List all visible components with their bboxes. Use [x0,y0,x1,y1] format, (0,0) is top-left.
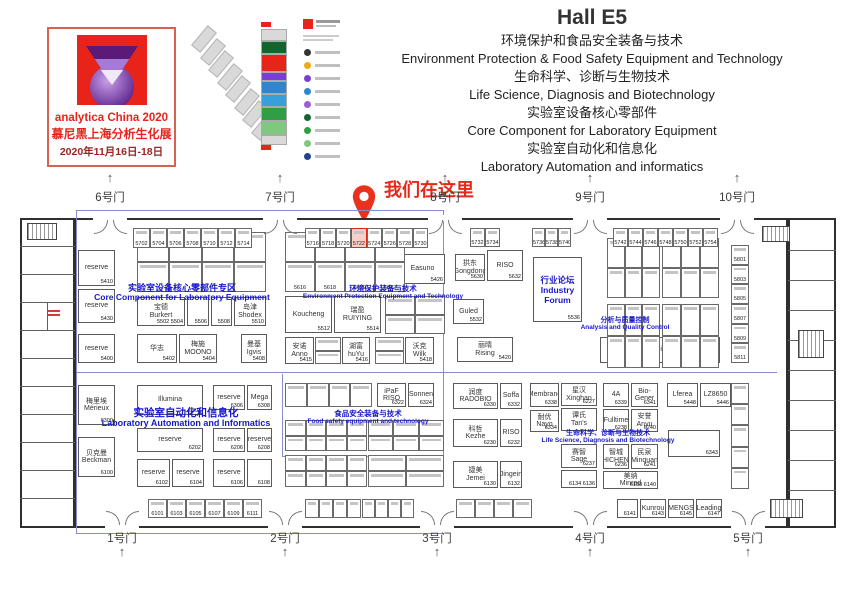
booth: Mega6308 [247,385,272,410]
hall-wall [20,218,75,528]
booth-cell [315,337,341,351]
booth-cell [368,455,406,471]
booth: 耐优 Nayo6334 [530,410,559,432]
booth-cell: 5744 [628,228,643,247]
wall-divider [20,246,75,247]
booth-cell [347,436,368,452]
booth-cell [368,471,406,487]
booth-cell [700,304,719,336]
booth-cell: 5720 [336,228,351,248]
booth: Kunrou6143 [640,499,666,518]
booth-cell: 5724 [367,228,382,248]
booth: 贝克曼 Beckman6100 [78,437,115,477]
wall-divider [20,498,75,499]
booth-cell: 5706 [167,228,184,248]
booth-cell [285,383,307,407]
booth-cell [285,471,306,487]
booth-cell: 5752 [688,228,703,247]
booth: 6141 [617,499,638,518]
booth-cell: 5708 [184,228,201,248]
booth-cell [662,268,681,298]
booth-cell: 6109 [224,499,243,518]
booth-cell [700,336,719,368]
booth-cell [731,404,749,425]
booth: 润度 RADOBIO6330 [453,383,498,409]
booth: Koucheng5512 [285,296,332,333]
wall-divider [788,400,836,401]
booth: 拱东 Gongdong5630 [455,254,485,281]
gate-arrow-icon: ↑ [119,545,126,558]
wall-divider [20,330,75,331]
booth-cell: 5726 [382,228,397,248]
booth-cell: 5736 [532,228,545,247]
booth: 行业论坛 Industry Forum5536 [533,257,582,322]
booth-cell [662,304,681,336]
gate-arrow-icon: ↑ [277,171,284,184]
booth: 捷美 Jemei6130 [453,461,498,488]
booth-cell: 5716 [305,228,320,248]
annex-red-note [48,314,60,316]
booth: iPaF RISO6322 [377,383,406,407]
booth-cell [285,455,306,471]
booth-cell [731,425,749,446]
booth: reserve6206 [213,428,245,452]
booth-cell [350,383,372,407]
booth: 4A6339 [603,383,629,407]
gate-label: 6号门 [95,189,124,205]
booth-cell [285,436,306,452]
booth: Membrane6338 [530,383,559,407]
booth-cell: 5748 [658,228,673,247]
booth-cell [607,336,625,368]
booth-cell: 5734 [485,228,500,247]
booth: 沃克 Wilk5418 [405,337,434,364]
booth-cell [375,337,404,351]
zone-boundary-line [76,372,777,373]
booth-cell [388,499,401,518]
wall-divider [20,470,75,471]
zone-label-en: Laboratory Automation and Informatics [102,418,271,428]
booth: reserve6202 [137,428,203,452]
booth-cell [681,304,700,336]
booth-cell: 6101 [148,499,167,518]
booth-cell [307,383,329,407]
floor-plan: 我们在这里 reserve5410reserve5430reserve5400宝… [0,0,844,608]
booth: 星汉 Xinghan6227 [561,383,597,406]
wall-divider [20,414,75,415]
booth-cell [406,455,444,471]
booth-cell [326,436,347,452]
booth-cell [333,499,347,518]
booth-cell: 5738 [545,228,558,247]
booth-cell: 6107 [205,499,224,518]
booth-cell: 5754 [703,228,718,247]
booth-cell: 5801 [731,245,749,265]
booth-cell [475,499,494,518]
booth-cell [285,420,306,436]
booth-cell: 5809 [731,324,749,344]
booth: 曼基 Igvis5408 [241,334,267,363]
booth-cell: 5750 [673,228,688,247]
booth: Jingein6132 [500,461,522,488]
zone-boundary-line [282,374,283,456]
gate-arrow-icon: ↑ [442,171,449,184]
gate-arrow-icon: ↑ [434,545,441,558]
wall-divider [47,302,48,330]
booth-cell [319,499,333,518]
wall-divider [788,250,836,251]
booth: Easuno5426 [400,254,445,284]
booth: 6343 [668,430,720,457]
booth-cell [642,336,660,368]
gate-arrow-icon: ↑ [282,545,289,558]
booth-cell: 5704 [150,228,167,248]
booth-cell: 5714 [235,228,252,248]
booth-cell: 5740 [558,228,571,247]
booth: 湖富 huYu5416 [342,337,370,364]
booth: 智城 ZHICHENG6236 [603,444,629,469]
booth: 6108 [247,459,272,487]
booth-cell [456,499,475,518]
stairs-icon [770,499,803,518]
zone-label-en: Food safety equipment and technology [308,418,429,425]
booth: 6134 6136 [561,470,597,488]
booth-cell [393,436,418,452]
booth: 美纳 Minrad6138 6140 [603,471,658,489]
booth-cell [326,455,347,471]
gate-label: 7号门 [265,189,294,205]
gate-label: 8号门 [430,189,459,205]
booth-cell [401,499,414,518]
wall-divider [20,442,75,443]
booth-cell [494,499,513,518]
gate-label: 9号门 [575,189,604,205]
gate-arrow-icon: ↑ [587,545,594,558]
booth: reserve6104 [172,459,204,487]
booth-cell: 5730 [413,228,428,248]
booth: 赛智 Sage6237 [561,444,597,468]
booth-cell [347,499,361,518]
booth: Lferea5448 [667,383,698,407]
wall-divider [788,310,836,311]
booth-cell [385,315,415,334]
wall-divider [20,358,75,359]
gate-arrow-icon: ↑ [745,545,752,558]
booth: Soffa6332 [500,383,522,409]
booth-cell: 6111 [243,499,262,518]
booth: reserve6102 [137,459,170,487]
zone-label-en: Life Science, Diagnosis and Biotechnolog… [542,437,675,444]
booth-cell: 5811 [731,343,749,363]
booth-cell: 5807 [731,304,749,324]
booth: MENGS6145 [668,499,694,518]
booth: RISO5632 [487,250,523,281]
booth: Leading6147 [696,499,722,518]
booth-cell: 5618 [315,262,345,292]
wall-divider [20,386,75,387]
we-are-here-label: 我们在这里 [384,176,474,202]
booth-cell [700,268,719,298]
booth-cell [513,499,532,518]
booth-cell [306,471,327,487]
booth-cell [731,468,749,489]
zone-boundary-line [76,210,444,211]
booth-cell [306,436,327,452]
booth-cell [375,499,388,518]
zone-label-en: Environment Protection Equipment and Tec… [303,293,463,300]
booth-cell [625,268,643,298]
booth-cell: 5803 [731,265,749,285]
booth: reserve6106 [213,459,245,487]
wall-divider [788,280,836,281]
booth-cell [731,447,749,468]
booth: Bio-Gener6341 [631,383,658,407]
zone-label-en: Core Component for Laboratory Equipment [94,292,270,302]
gate-label: 10号门 [719,189,755,205]
booth: reserve5410 [78,250,115,286]
booth-cell [681,268,700,298]
wall-divider [788,460,836,461]
booth-cell [315,351,341,365]
gate-arrow-icon: ↑ [734,171,741,184]
booth-cell [305,499,319,518]
booth-cell [306,455,327,471]
booth: Guled5532 [453,299,484,324]
hall-wall [788,218,836,528]
stairs-icon [27,223,57,240]
booth: 民泉 Minquan6241 [631,444,658,469]
booth-cell: 6103 [167,499,186,518]
booth-cell [607,268,625,298]
wall-divider [20,274,75,275]
booth: 科哲 Kezhe6230 [453,419,498,447]
annex-red-note [48,310,60,312]
booth-cell [642,268,660,298]
wall-divider [788,490,836,491]
booth-cell: 5718 [320,228,335,248]
booth-cell [681,336,700,368]
booth-cell: 5732 [470,228,485,247]
booth-cell [347,455,368,471]
booth: reserve6208 [247,428,272,452]
booth-cell [326,471,347,487]
gate-arrow-icon: ↑ [587,171,594,184]
booth: 瑞盈 RUIYING5514 [334,296,381,333]
booth-cell [329,383,351,407]
booth-cell: 5712 [218,228,235,248]
booth-cell [415,315,445,334]
booth-cell [419,436,444,452]
booth-cell [375,351,404,365]
booth-cell [731,383,749,404]
booth-cell [368,436,393,452]
booth: reserve5400 [78,334,115,363]
booth-cell: 5742 [613,228,628,247]
zone-label-en: Analysis and Quality Control [581,324,670,331]
booth-cell: 5710 [201,228,218,248]
booth-cell [625,336,643,368]
booth-cell [662,336,681,368]
booth: RISO6232 [500,419,522,447]
booth-cell: 6105 [186,499,205,518]
stairs-icon [762,226,790,242]
booth: 梅施 MOONO5404 [179,334,217,363]
booth: Sonnen6324 [408,383,434,407]
booth-cell: 5728 [397,228,412,248]
wall-divider [788,430,836,431]
booth: 安诺 Anno5415 [285,337,314,364]
wall-divider [788,370,836,371]
location-pin-icon [350,183,378,223]
booth-cell: 5702 [133,228,150,248]
booth-cell: 5805 [731,284,749,304]
highlighted-booth: 5722 [351,228,366,248]
booth: LZ86505446 [700,383,731,407]
booth-cell [234,262,266,292]
booth-cell [362,499,375,518]
booth-cell [347,471,368,487]
booth-cell: 5746 [643,228,658,247]
booth: 丽晴 Rising5420 [457,337,513,362]
booth-cell: 5616 [285,262,315,292]
gate-arrow-icon: ↑ [107,171,114,184]
booth: 华志5402 [137,334,177,363]
booth-cell [406,471,444,487]
stairs-icon [798,330,824,358]
